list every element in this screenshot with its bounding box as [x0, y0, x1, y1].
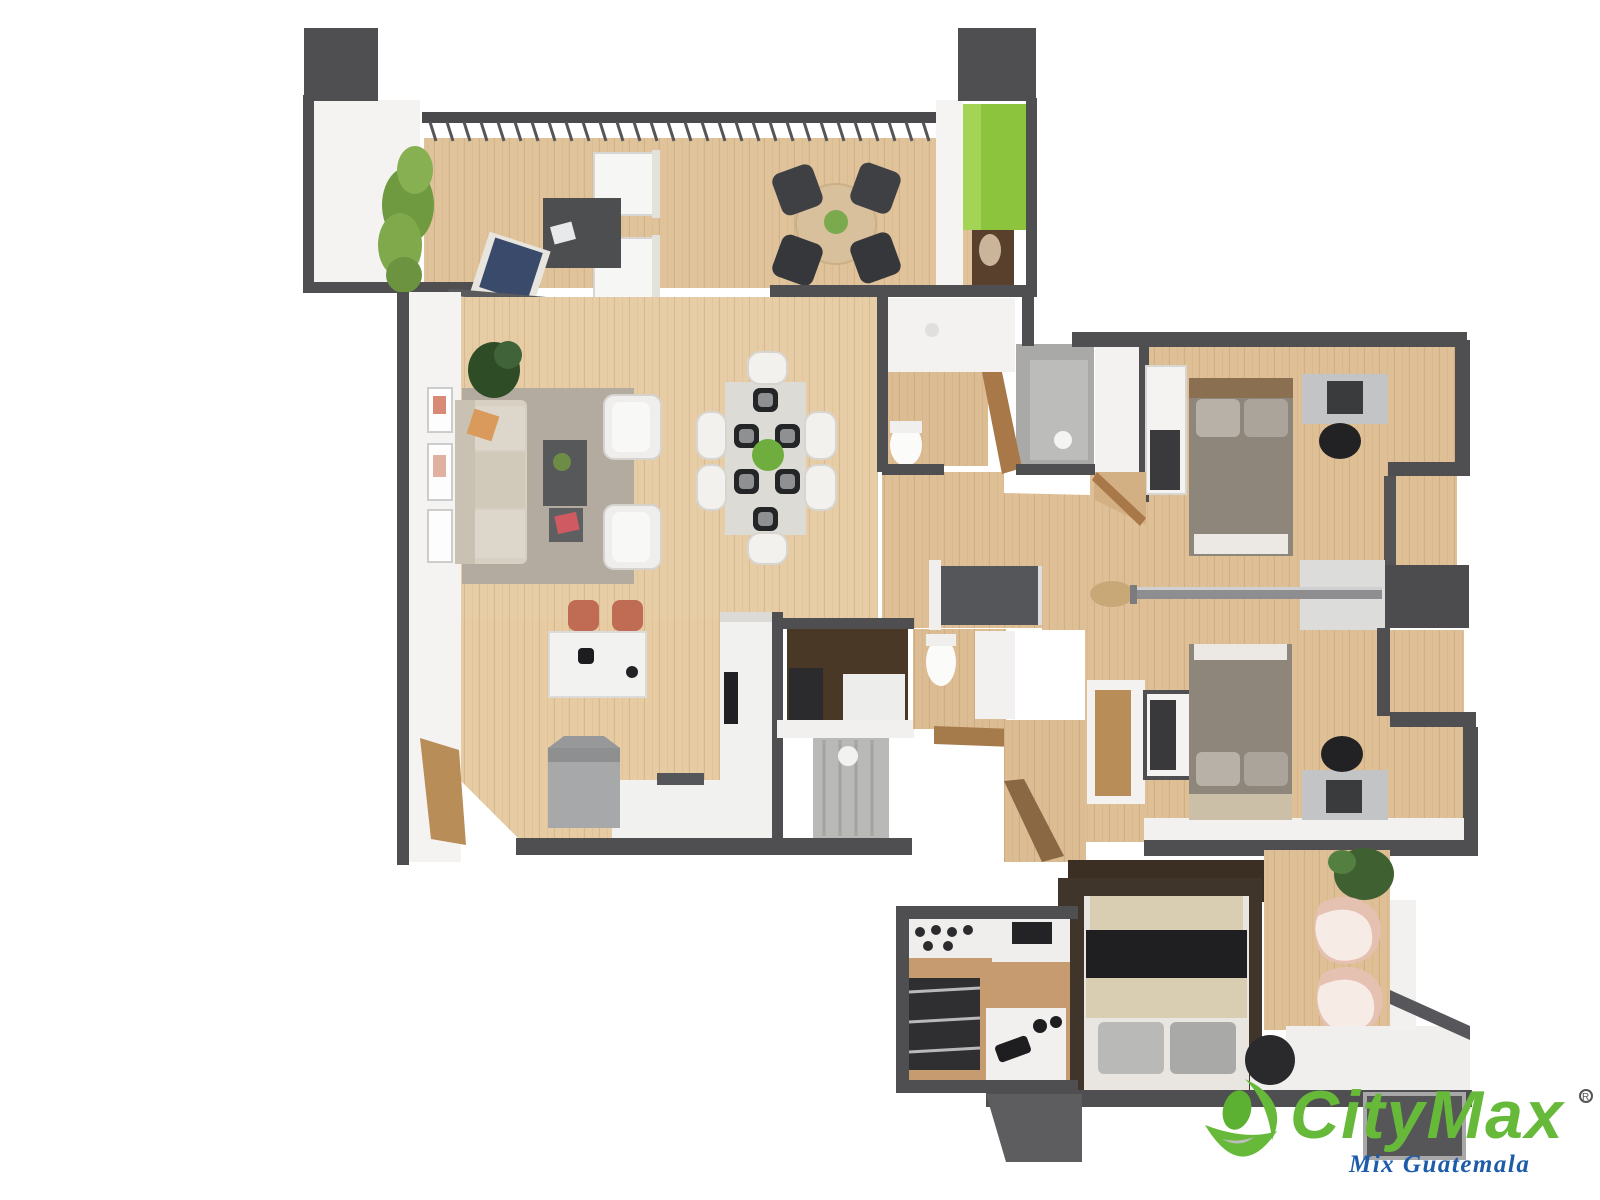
svg-text:CityMax: CityMax [1290, 1077, 1566, 1153]
svg-text:Mix Guatemala: Mix Guatemala [1348, 1151, 1530, 1178]
svg-text:R: R [1582, 1092, 1589, 1103]
